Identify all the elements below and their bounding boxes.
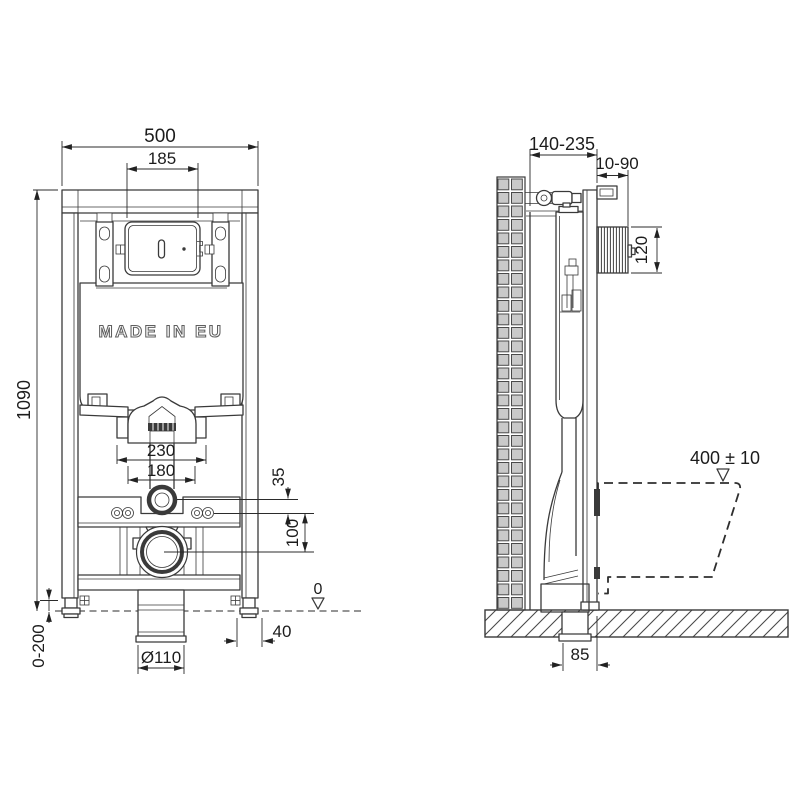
rail-bolt-left (116, 245, 125, 254)
foot-lock-bolt-right (231, 596, 240, 605)
dim-text-plate-cutout: 185 (148, 149, 176, 168)
toilet-bowl-outline (594, 483, 740, 594)
dim-text-frame-height: 1090 (14, 380, 34, 420)
cistern-tank: MADE IN EU (80, 283, 243, 410)
dim-text-bowl-rim-height: 400 ± 10 (690, 448, 760, 468)
mounting-stud-top (594, 489, 600, 516)
plate-pin (182, 247, 185, 250)
water-inlet-port (149, 487, 175, 513)
dim-text-foot-adjustment: 0-200 (29, 624, 48, 667)
cistern-side (556, 203, 583, 472)
adjustable-foot-right (240, 598, 258, 618)
installation-frame-drawing: MADE IN EU (0, 0, 800, 800)
dim-text-floor-level: 0 (314, 581, 323, 598)
dim-text-inlet-offset: 35 (269, 468, 288, 487)
front-view: MADE IN EU (14, 126, 362, 674)
dim-plate-box-height: 120 (631, 227, 662, 273)
level-mark-triangle (717, 469, 729, 481)
dim-fixing-span-inner: 180 (128, 461, 195, 484)
dim-frame-height: 1090 (14, 190, 58, 611)
dim-drain-diameter: Ø110 (138, 645, 184, 674)
wall-section (497, 177, 525, 610)
dim-text-drain-offset: 100 (283, 519, 302, 547)
hanger-rail-right (212, 222, 229, 286)
floor-drain-stub (562, 612, 588, 635)
adjustable-foot-left (62, 598, 80, 618)
dim-text-drain-axis-offset: 85 (571, 645, 590, 664)
made-in-label: MADE IN EU (98, 322, 223, 341)
floor-section (485, 610, 788, 637)
rail-bolt-right (205, 245, 214, 254)
water-supply-pipe (525, 191, 581, 206)
dim-bowl-rim-height: 400 ± 10 (690, 448, 760, 481)
shutoff-valve (537, 191, 552, 206)
dim-text-fixing-span-outer: 230 (147, 441, 175, 460)
dim-text-plate-box-height: 120 (632, 236, 651, 264)
hanger-rail-left (96, 222, 113, 286)
side-view: 140-235 10-90 120 400 ± 10 85 (485, 134, 788, 671)
dim-foot-depth: 40 (224, 618, 291, 647)
dim-floor-level-mark: 0 (312, 581, 324, 609)
mounting-stud-bottom (594, 567, 600, 579)
technical-drawing-page: MADE IN EU (0, 0, 800, 800)
dim-foot-adjustment: 0-200 (29, 588, 58, 668)
dim-text-foot-depth: 40 (273, 622, 292, 641)
flush-plate-window (125, 222, 203, 275)
side-frame-foot (581, 602, 599, 610)
drain-pipe-bottom (136, 590, 186, 642)
dim-text-frame-depth: 140-235 (529, 134, 595, 154)
dim-text-finished-wall: 10-90 (595, 154, 638, 173)
dim-text-frame-width: 500 (144, 126, 176, 147)
dim-text-fixing-span-inner: 180 (147, 461, 175, 480)
flush-plate-box (597, 227, 635, 273)
foot-lock-bolt-left (80, 596, 89, 605)
dim-text-drain-diameter: Ø110 (141, 648, 181, 667)
